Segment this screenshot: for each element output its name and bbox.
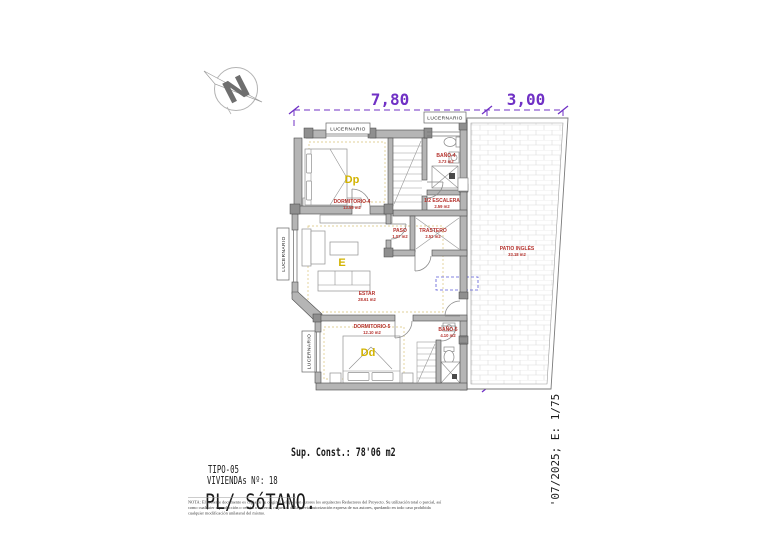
- door-trastero: [415, 256, 431, 271]
- room-name-bano5: BAÑO-5: [438, 326, 457, 333]
- armchair-icon: [302, 229, 325, 266]
- lucernario-label-3: LUCERNARIO: [281, 236, 287, 271]
- room-area-escalera: 2.59 m2: [434, 204, 450, 209]
- dim-width-patio: 3,00: [507, 90, 546, 109]
- shower-icon-bano5: [441, 362, 460, 383]
- tipo-label: TIPO-05: [208, 465, 239, 477]
- viviendas-label: VIVIENDAs Nº: 18: [207, 476, 278, 488]
- room-area-dormitorio5: 12.10 m2: [363, 330, 381, 335]
- lucernario-label-2: LUCERNARIO: [427, 116, 462, 122]
- room-area-dormitorio4: 13.58 m2: [343, 205, 361, 210]
- sideboard-icon: [320, 215, 392, 223]
- coffee-table-icon: [330, 242, 358, 255]
- room-area-trastero: 2.52 m2: [425, 234, 441, 239]
- room-area-bano5: 4.10 m2: [440, 333, 456, 338]
- floor-plan-drawing: N 7,80 3,00 11,06: [0, 0, 770, 535]
- room-area-bano4: 3.73 m2: [438, 159, 454, 164]
- room-area-patio: 33.18 m2: [508, 252, 526, 257]
- north-arrow: N: [204, 68, 262, 115]
- toilet-icon-bano4: [444, 137, 461, 147]
- dim-width-main: 7,80: [371, 90, 410, 109]
- skylight-window-left-estar: [294, 230, 298, 282]
- nightstand-right-icon: [402, 373, 413, 383]
- room-name-patio: PATIO INGLÉS: [500, 244, 535, 252]
- sup-const-label: Sup. Const.: 78'06 m2: [291, 447, 396, 460]
- sofa-icon: [318, 271, 370, 291]
- lucernario-label-1: LUCERNARIO: [330, 127, 365, 133]
- room-code-e: E: [338, 257, 345, 269]
- door-dormitorio5: [395, 321, 412, 338]
- patio-window-small: [458, 178, 468, 191]
- shower-icon-bano4: [432, 166, 458, 188]
- stairs-lower: [417, 342, 436, 383]
- date-scale-label: '07/2025; E: 1/75: [549, 394, 562, 507]
- room-area-paso: 1.07 m2: [392, 234, 408, 239]
- room-code-dp: Dp: [345, 174, 360, 186]
- room-code-dd: Dd: [361, 347, 376, 359]
- bed-double-icon: [305, 149, 347, 205]
- nightstand-left-icon: [330, 373, 341, 383]
- title-block: Sup. Const.: 78'06 m2 TIPO-05 VIVIENDAs …: [188, 394, 562, 516]
- nota-line-3: cualquier modificación unilateral del mi…: [188, 511, 265, 516]
- toilet-icon-bano5: [444, 347, 454, 364]
- room-name-bano4: BAÑO-4: [436, 152, 455, 159]
- stairs-upper: [393, 141, 422, 204]
- room-area-estar: 28.61 m2: [358, 297, 376, 302]
- bed-double-2-icon: [343, 336, 400, 383]
- skylight-window-left-d5: [317, 332, 321, 372]
- door-patio: [445, 301, 460, 316]
- floor-plan-sheet: N 7,80 3,00 11,06: [0, 0, 770, 535]
- lucernario-label-4: LUCERNARIO: [307, 334, 313, 369]
